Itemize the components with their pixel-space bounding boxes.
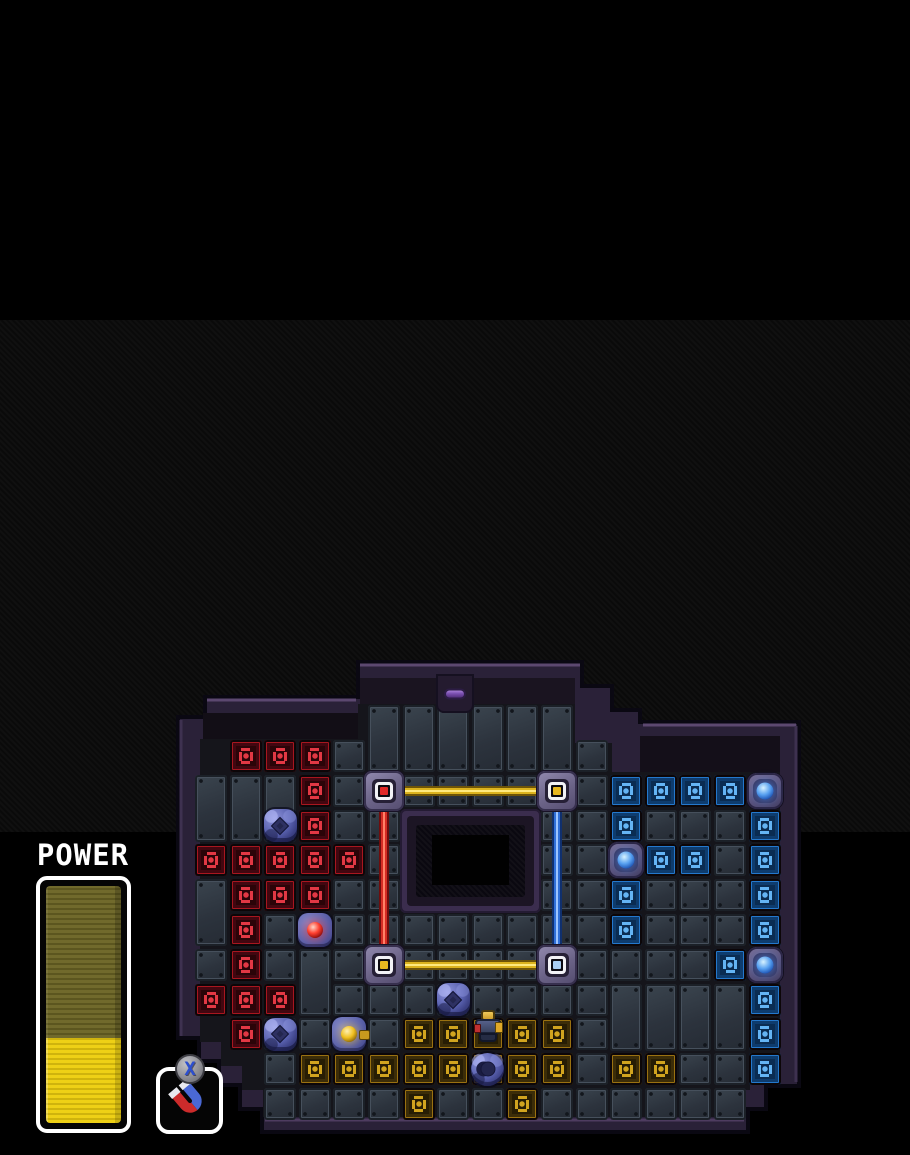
tile-grey	[645, 810, 677, 842]
tile-blue	[610, 879, 642, 911]
blob-core	[450, 996, 457, 1003]
tile-grey	[679, 949, 711, 981]
tile-blue	[610, 914, 642, 946]
tile-blue	[749, 879, 781, 911]
tile-grey-tall	[541, 705, 573, 772]
tile-grey	[576, 740, 608, 772]
tile-blue	[679, 844, 711, 876]
tile-grey	[437, 914, 469, 946]
tile-grey-tall	[299, 949, 331, 1016]
tile-red	[299, 775, 331, 807]
tile-blue	[645, 775, 677, 807]
tile-grey-tall	[645, 984, 677, 1051]
laser-node-blue	[537, 945, 577, 985]
player-right-hand	[495, 1022, 503, 1033]
tile-grey-tall	[230, 775, 262, 842]
tile-grey	[333, 810, 365, 842]
tile-gold	[506, 1018, 538, 1050]
tile-red	[264, 844, 296, 876]
tile-gold	[610, 1053, 642, 1085]
tile-grey	[714, 810, 746, 842]
tile-grey	[576, 879, 608, 911]
tile-grey	[264, 949, 296, 981]
tile-grey-tall	[714, 984, 746, 1051]
x-button-badge: X	[175, 1054, 205, 1084]
tile-red	[230, 844, 262, 876]
tile-red	[230, 740, 262, 772]
tile-grey	[333, 775, 365, 807]
laser-node-core	[375, 956, 393, 974]
tile-grey	[333, 984, 365, 1016]
tile-gold	[506, 1088, 538, 1120]
tile-gold	[437, 1018, 469, 1050]
tile-gold	[333, 1053, 365, 1085]
tile-grey	[541, 984, 573, 1016]
tile-blue	[679, 775, 711, 807]
tile-grey	[333, 914, 365, 946]
power-label: POWER	[24, 838, 142, 872]
tile-gold	[403, 1018, 435, 1050]
tile-grey	[506, 914, 538, 946]
tile-grey	[576, 844, 608, 876]
tile-gold	[299, 1053, 331, 1085]
tile-grey	[472, 914, 504, 946]
tile-grey	[333, 879, 365, 911]
player-character[interactable]	[475, 1010, 501, 1043]
tile-grey-tall	[195, 775, 227, 842]
tile-grey	[576, 775, 608, 807]
tile-grey	[714, 844, 746, 876]
room	[0, 320, 910, 1155]
laser-beam-yellow	[384, 786, 557, 796]
tile-grey	[714, 879, 746, 911]
blue-orb-socket	[747, 947, 783, 983]
tile-grey-tall	[437, 705, 469, 772]
blue-orb	[618, 852, 635, 869]
tile-grey	[333, 949, 365, 981]
tile-grey	[195, 949, 227, 981]
tile-grey	[264, 914, 296, 946]
tile-grey	[610, 1088, 642, 1120]
tile-grey-tall	[610, 984, 642, 1051]
tile-grey	[679, 1088, 711, 1120]
tile-blue	[749, 1053, 781, 1085]
game-screen: POWER X	[0, 0, 910, 1155]
laser-node-red	[364, 771, 404, 811]
tile-grey	[368, 984, 400, 1016]
tile-red	[230, 914, 262, 946]
tile-blue	[749, 810, 781, 842]
x-button-letter: X	[184, 1058, 195, 1080]
tile-grey	[645, 1088, 677, 1120]
tile-blue	[645, 844, 677, 876]
tile-grey	[679, 914, 711, 946]
laser-node-yellow	[364, 945, 404, 985]
tile-grey	[714, 914, 746, 946]
tile-gold	[645, 1053, 677, 1085]
tile-grey-tall	[506, 705, 538, 772]
blue-orb	[756, 782, 773, 799]
tile-red	[230, 949, 262, 981]
pit-bottom	[432, 835, 510, 886]
tile-red	[230, 1018, 262, 1050]
tile-blue	[610, 775, 642, 807]
blob-enemy	[264, 809, 297, 842]
red-orb-device	[298, 913, 332, 947]
laser-beam-red	[379, 791, 389, 965]
tile-grey-tall	[679, 984, 711, 1051]
door-lock	[436, 674, 474, 713]
tile-grey	[264, 1053, 296, 1085]
tile-red	[264, 984, 296, 1016]
tile-grey	[264, 1088, 296, 1120]
tile-gold	[541, 1018, 573, 1050]
tile-grey	[576, 984, 608, 1016]
tile-grey	[576, 1018, 608, 1050]
tile-blue	[714, 949, 746, 981]
tile-red	[299, 879, 331, 911]
tile-grey	[679, 810, 711, 842]
tile-grey	[333, 740, 365, 772]
tile-grey	[506, 984, 538, 1016]
tile-blue	[714, 775, 746, 807]
tile-grey	[645, 879, 677, 911]
tile-gold	[437, 1053, 469, 1085]
tile-blue	[610, 810, 642, 842]
tile-grey	[541, 1088, 573, 1120]
yellow-orb	[341, 1026, 357, 1042]
blob-enemy	[471, 1053, 504, 1086]
blue-orb-socket	[747, 773, 783, 809]
power-meter-fill-area	[46, 886, 121, 1123]
tile-grey	[714, 1088, 746, 1120]
tile-grey-tall	[195, 879, 227, 946]
tile-grey	[333, 1088, 365, 1120]
tile-blue	[749, 1018, 781, 1050]
door-gem-icon	[444, 688, 466, 699]
blue-orb	[756, 956, 773, 973]
tile-grey	[403, 984, 435, 1016]
tile-grey	[299, 1018, 331, 1050]
tile-blue	[749, 984, 781, 1016]
tile-grey	[645, 914, 677, 946]
red-orb	[307, 922, 323, 938]
tile-grey	[576, 949, 608, 981]
tile-gold	[368, 1053, 400, 1085]
tile-grey	[610, 949, 642, 981]
tile-red	[299, 844, 331, 876]
tile-grey	[368, 1088, 400, 1120]
tile-grey	[679, 1053, 711, 1085]
tile-blue	[749, 914, 781, 946]
tile-grey	[714, 1053, 746, 1085]
player-left-hand	[474, 1024, 481, 1033]
tile-red	[264, 879, 296, 911]
tile-gold	[506, 1053, 538, 1085]
tile-blue	[749, 844, 781, 876]
tile-red	[230, 984, 262, 1016]
tile-grey	[403, 914, 435, 946]
player-legs	[479, 1033, 497, 1042]
blob-enemy	[437, 983, 470, 1016]
tile-red	[299, 810, 331, 842]
tile-grey-tall	[368, 705, 400, 772]
tile-grey	[576, 914, 608, 946]
tile-red	[195, 844, 227, 876]
tile-grey-tall	[472, 705, 504, 772]
tile-grey	[368, 1018, 400, 1050]
tile-gold	[403, 1053, 435, 1085]
power-meter	[36, 876, 131, 1133]
tile-gold	[403, 1088, 435, 1120]
tile-red	[333, 844, 365, 876]
blob-enemy	[264, 1018, 297, 1051]
tile-red	[230, 879, 262, 911]
tile-grey	[645, 949, 677, 981]
tile-grey	[437, 1088, 469, 1120]
blue-orb-socket	[608, 842, 644, 878]
tile-grey	[576, 1088, 608, 1120]
tile-grey-tall	[403, 705, 435, 772]
tile-red	[264, 740, 296, 772]
tile-gold	[541, 1053, 573, 1085]
tile-red	[299, 740, 331, 772]
laser-node-core	[375, 782, 393, 800]
tile-grey	[472, 1088, 504, 1120]
laser-beam-yellow	[384, 960, 557, 970]
laser-beam-blue	[552, 791, 562, 965]
laser-node-core	[548, 782, 566, 800]
tile-grey	[679, 879, 711, 911]
power-meter-bright-fill	[46, 1038, 121, 1123]
power-meter-dim-fill	[46, 886, 121, 1038]
pit	[400, 809, 542, 914]
tile-grey	[576, 1053, 608, 1085]
blob-core	[484, 1066, 491, 1073]
blob-core	[277, 1031, 284, 1038]
tile-grey	[576, 810, 608, 842]
tile-grey	[299, 1088, 331, 1120]
tile-red	[195, 984, 227, 1016]
yellow-orb-device	[332, 1017, 366, 1051]
blob-core	[277, 822, 284, 829]
game-viewport[interactable]: POWER X	[0, 320, 910, 832]
laser-node-core	[548, 956, 566, 974]
laser-node-yellow	[537, 771, 577, 811]
